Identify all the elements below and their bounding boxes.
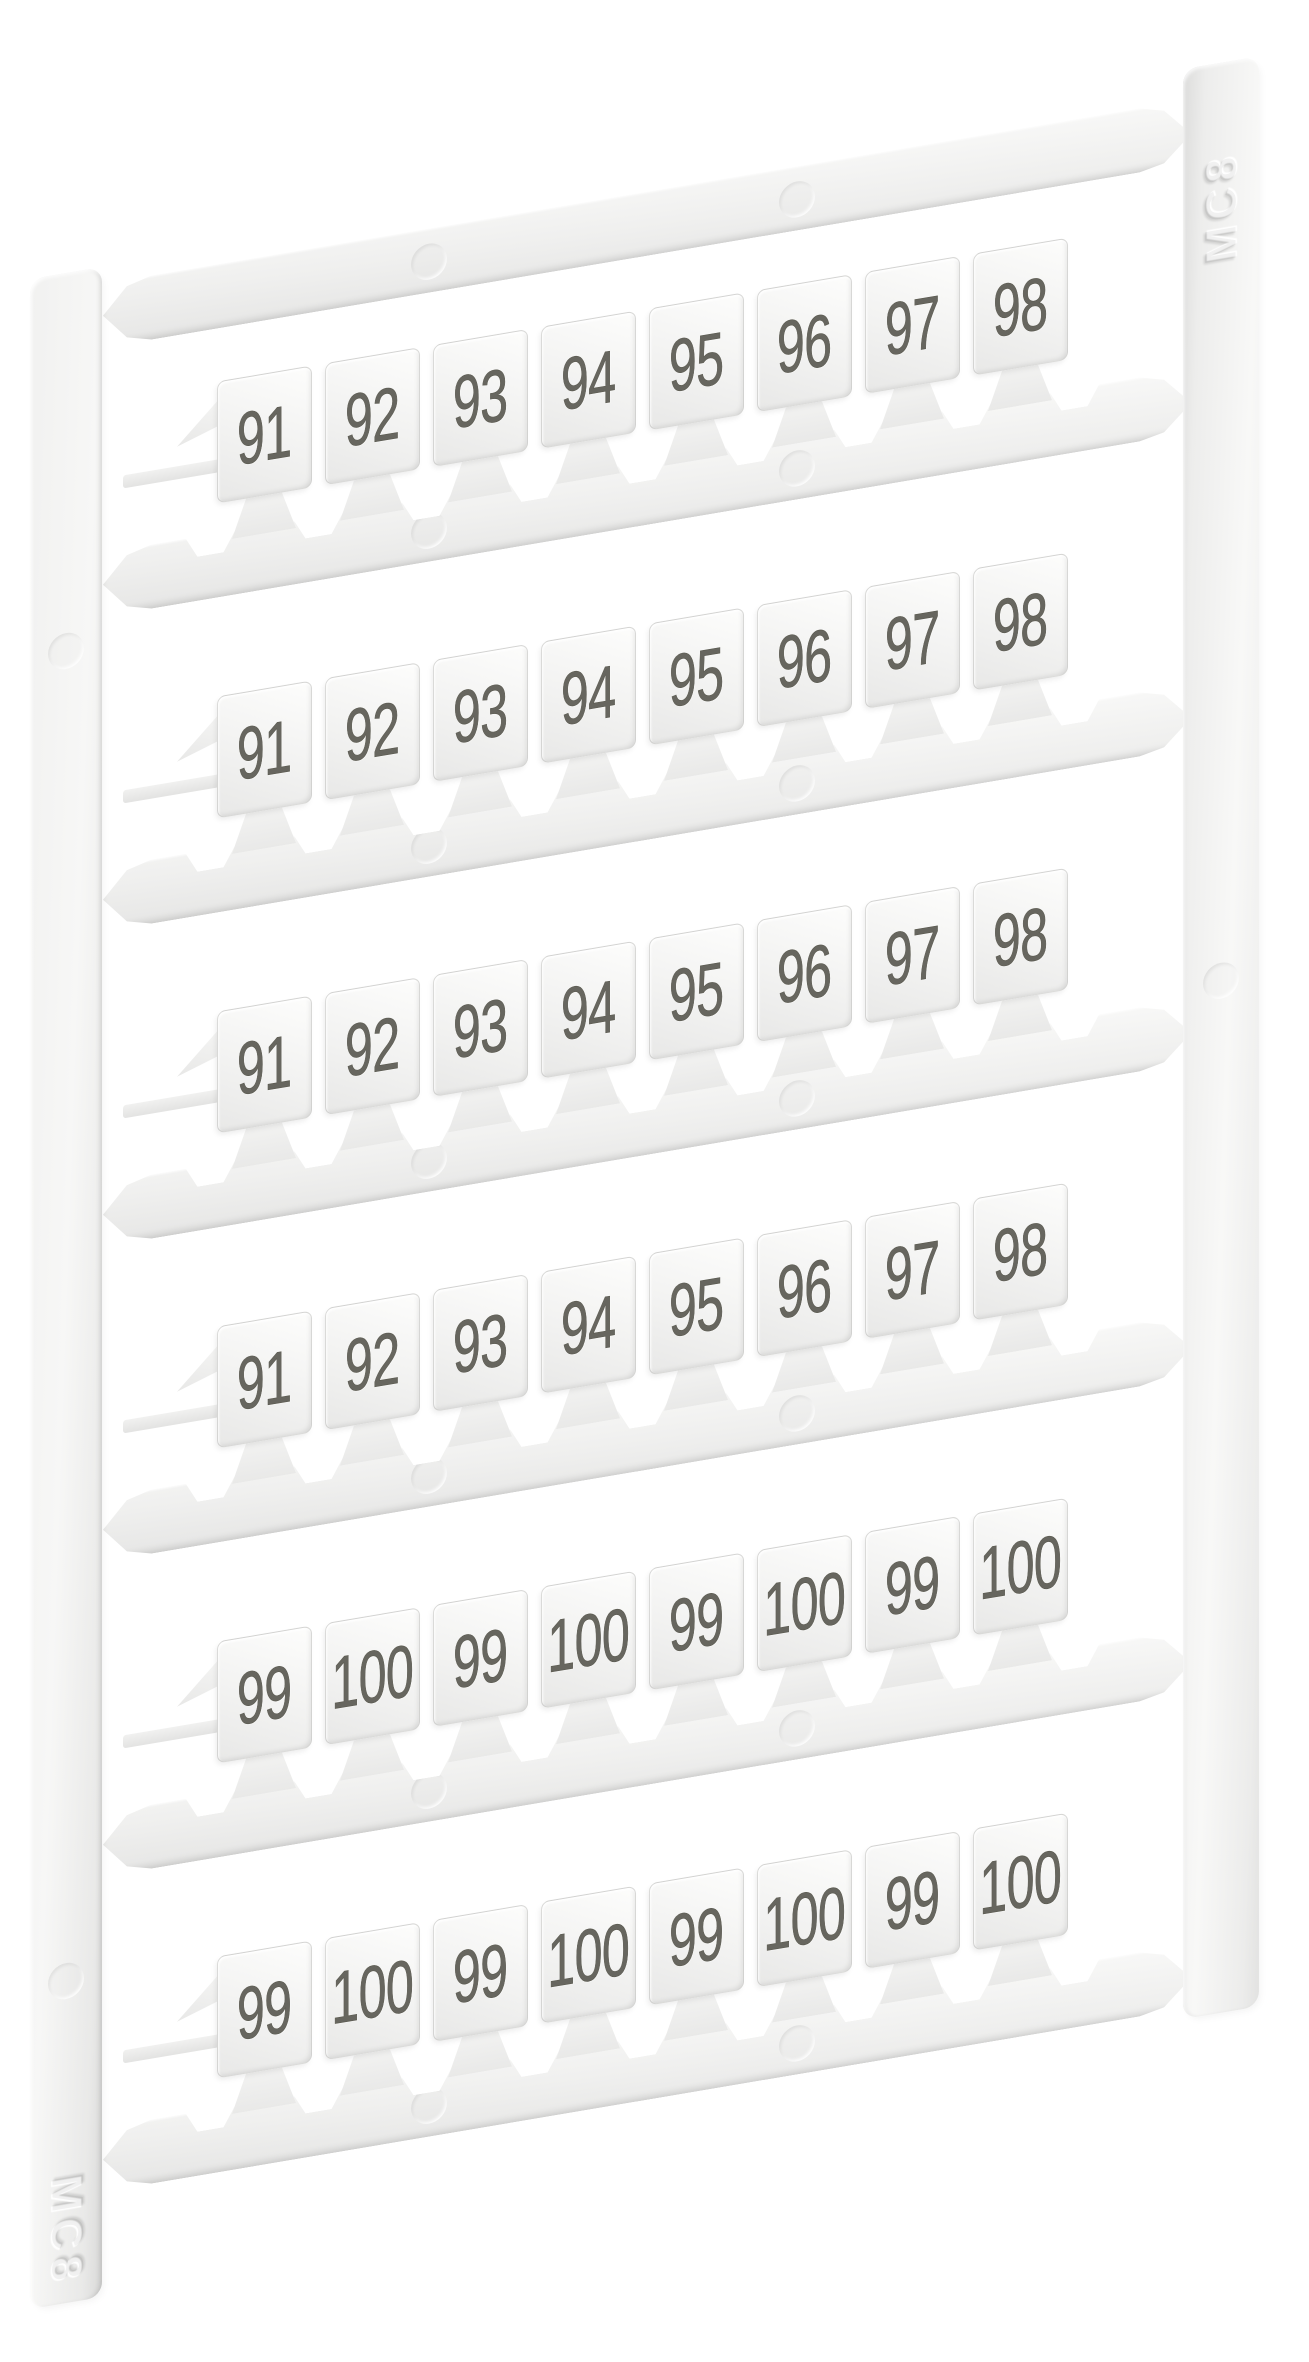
marker-tag: 97 <box>865 256 960 394</box>
tag-number: 99 <box>453 1926 508 2020</box>
tag-number: 95 <box>669 314 724 408</box>
sprue-bar <box>123 1089 219 1118</box>
marker-tag: 95 <box>649 1237 744 1375</box>
marker-tag: 93 <box>433 329 528 467</box>
marker-tag: 94 <box>541 1256 636 1394</box>
tag-number: 91 <box>237 387 292 481</box>
tag-number: 98 <box>993 1205 1048 1299</box>
marker-tag: 96 <box>757 1219 852 1357</box>
tag-number: 91 <box>237 1332 292 1426</box>
marker-tag: 91 <box>217 680 312 818</box>
tag-number: 97 <box>885 1223 940 1317</box>
sprue-bar <box>123 459 219 488</box>
tag-number: 97 <box>885 278 940 372</box>
marker-tag: 99 <box>649 1552 744 1690</box>
sprue-bar <box>123 1404 219 1433</box>
tag-number: 97 <box>885 593 940 687</box>
tag-number: 96 <box>777 1241 832 1335</box>
marker-tag: 98 <box>973 1183 1068 1321</box>
marker-tag: 97 <box>865 571 960 709</box>
marker-tag: 99 <box>649 1867 744 2005</box>
marker-tag: 99 <box>865 1516 960 1654</box>
tag-number: 96 <box>777 611 832 705</box>
marker-tag: 99 <box>865 1831 960 1969</box>
marker-tag: 96 <box>757 274 852 412</box>
tag-number: 100 <box>332 1627 414 1726</box>
tag-number: 99 <box>885 1538 940 1632</box>
product-photo: MC8 MC8 91929394959697989192939495969798… <box>0 0 1309 2362</box>
tag-number: 95 <box>669 1259 724 1353</box>
marker-tag: 98 <box>973 238 1068 376</box>
rail-marking: MC8 <box>1196 148 1246 267</box>
sprue-triangle <box>177 1974 219 2025</box>
tag-number: 93 <box>453 1296 508 1390</box>
tag-number: 96 <box>777 296 832 390</box>
marker-tag: 91 <box>217 1310 312 1448</box>
sprue-bar <box>123 774 219 803</box>
sprue-triangle <box>177 714 219 765</box>
sprue-triangle <box>177 1659 219 1710</box>
tag-number: 94 <box>561 648 616 742</box>
sprue-bar <box>123 2034 219 2063</box>
marker-tag: 98 <box>973 868 1068 1006</box>
tag-number: 93 <box>453 981 508 1075</box>
marker-sheet: MC8 MC8 91929394959697989192939495969798… <box>25 60 1265 2362</box>
tag-number: 91 <box>237 1017 292 1111</box>
right-rail: MC8 <box>1183 56 1259 2019</box>
marker-tag: 100 <box>325 1607 420 1745</box>
marker-tag: 94 <box>541 941 636 1079</box>
sprue-triangle <box>177 1029 219 1080</box>
tag-number: 100 <box>548 1905 630 2004</box>
mold-mark <box>48 630 84 672</box>
marker-tag: 100 <box>973 1498 1068 1636</box>
marker-tag: 95 <box>649 292 744 430</box>
marker-tag: 95 <box>649 922 744 1060</box>
marker-tag: 92 <box>325 662 420 800</box>
tag-number: 93 <box>453 351 508 445</box>
left-rail-marking-area: MC8 <box>30 2139 102 2321</box>
tag-number: 100 <box>764 1554 846 1653</box>
marker-tag: 94 <box>541 311 636 449</box>
marker-tag: 93 <box>433 1274 528 1412</box>
tag-number: 92 <box>345 684 400 778</box>
tag-number: 100 <box>764 1869 846 1968</box>
marker-tag: 99 <box>433 1904 528 2042</box>
marker-tag: 100 <box>973 1813 1068 1951</box>
tag-number: 98 <box>993 575 1048 669</box>
marker-tag: 97 <box>865 886 960 1024</box>
marker-tag: 93 <box>433 959 528 1097</box>
marker-tag: 100 <box>757 1534 852 1672</box>
marker-tag: 98 <box>973 553 1068 691</box>
tag-number: 93 <box>453 666 508 760</box>
tag-number: 98 <box>993 260 1048 354</box>
tag-number: 98 <box>993 890 1048 984</box>
marker-tag: 92 <box>325 977 420 1115</box>
marker-tag: 94 <box>541 626 636 764</box>
tag-number: 99 <box>885 1853 940 1947</box>
marker-tag: 100 <box>541 1571 636 1709</box>
tag-number: 92 <box>345 999 400 1093</box>
rail-marking: MC8 <box>41 2170 91 2289</box>
mold-mark <box>48 1960 84 2002</box>
sprue-triangle <box>177 1344 219 1395</box>
tag-number: 99 <box>237 1647 292 1741</box>
marker-tag: 99 <box>217 1625 312 1763</box>
tag-number: 97 <box>885 908 940 1002</box>
marker-tag: 91 <box>217 365 312 503</box>
tag-number: 99 <box>669 1889 724 1983</box>
marker-tag: 99 <box>433 1589 528 1727</box>
tag-number: 100 <box>332 1942 414 2041</box>
tag-number: 92 <box>345 369 400 463</box>
marker-tag: 100 <box>541 1886 636 2024</box>
marker-tag: 96 <box>757 904 852 1042</box>
tag-number: 100 <box>548 1590 630 1689</box>
tag-number: 95 <box>669 629 724 723</box>
tag-number: 95 <box>669 944 724 1038</box>
tag-number: 99 <box>237 1962 292 2056</box>
left-rail: MC8 <box>30 267 102 2309</box>
marker-tag: 92 <box>325 347 420 485</box>
tag-number: 94 <box>561 1278 616 1372</box>
marker-tag: 97 <box>865 1201 960 1339</box>
tag-number: 100 <box>980 1832 1062 1931</box>
tag-number: 96 <box>777 926 832 1020</box>
tag-number: 94 <box>561 333 616 427</box>
marker-tag: 92 <box>325 1292 420 1430</box>
sprue-bar <box>123 1719 219 1748</box>
tag-number: 92 <box>345 1314 400 1408</box>
marker-tag: 100 <box>325 1922 420 2060</box>
mold-mark <box>1203 960 1239 1002</box>
right-rail-marking-area: MC8 <box>1183 116 1259 299</box>
tag-number: 99 <box>453 1611 508 1705</box>
marker-tag: 93 <box>433 644 528 782</box>
marker-tag: 95 <box>649 607 744 745</box>
tag-number: 100 <box>980 1517 1062 1616</box>
tag-number: 99 <box>669 1574 724 1668</box>
sprue-triangle <box>177 399 219 450</box>
marker-tag: 99 <box>217 1940 312 2078</box>
tag-number: 91 <box>237 702 292 796</box>
marker-tag: 91 <box>217 995 312 1133</box>
tag-number: 94 <box>561 963 616 1057</box>
marker-tag: 100 <box>757 1849 852 1987</box>
marker-tag: 96 <box>757 589 852 727</box>
